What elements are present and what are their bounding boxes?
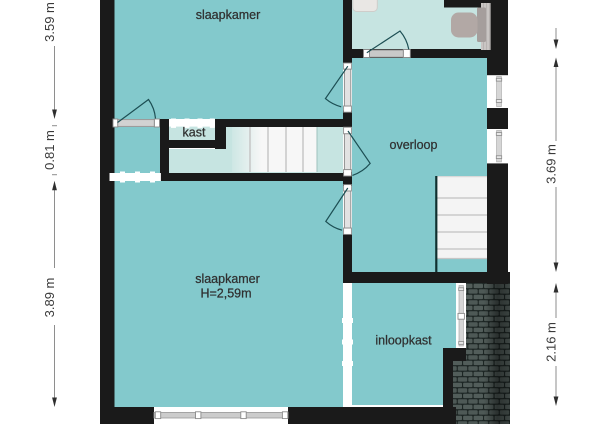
svg-text:0.81 m: 0.81 m bbox=[42, 130, 57, 170]
svg-text:3.89 m: 3.89 m bbox=[42, 278, 57, 318]
svg-text:2.16 m: 2.16 m bbox=[544, 322, 559, 362]
svg-text:overloop: overloop bbox=[390, 138, 438, 152]
svg-text:3.69 m: 3.69 m bbox=[544, 144, 559, 184]
svg-text:H=2,59m: H=2,59m bbox=[200, 287, 251, 301]
svg-text:slaapkamer: slaapkamer bbox=[195, 272, 260, 286]
svg-text:inloopkast: inloopkast bbox=[375, 334, 432, 348]
svg-text:3.59 m: 3.59 m bbox=[42, 2, 57, 42]
svg-text:slaapkamer: slaapkamer bbox=[196, 8, 261, 22]
svg-text:kast: kast bbox=[183, 126, 206, 140]
